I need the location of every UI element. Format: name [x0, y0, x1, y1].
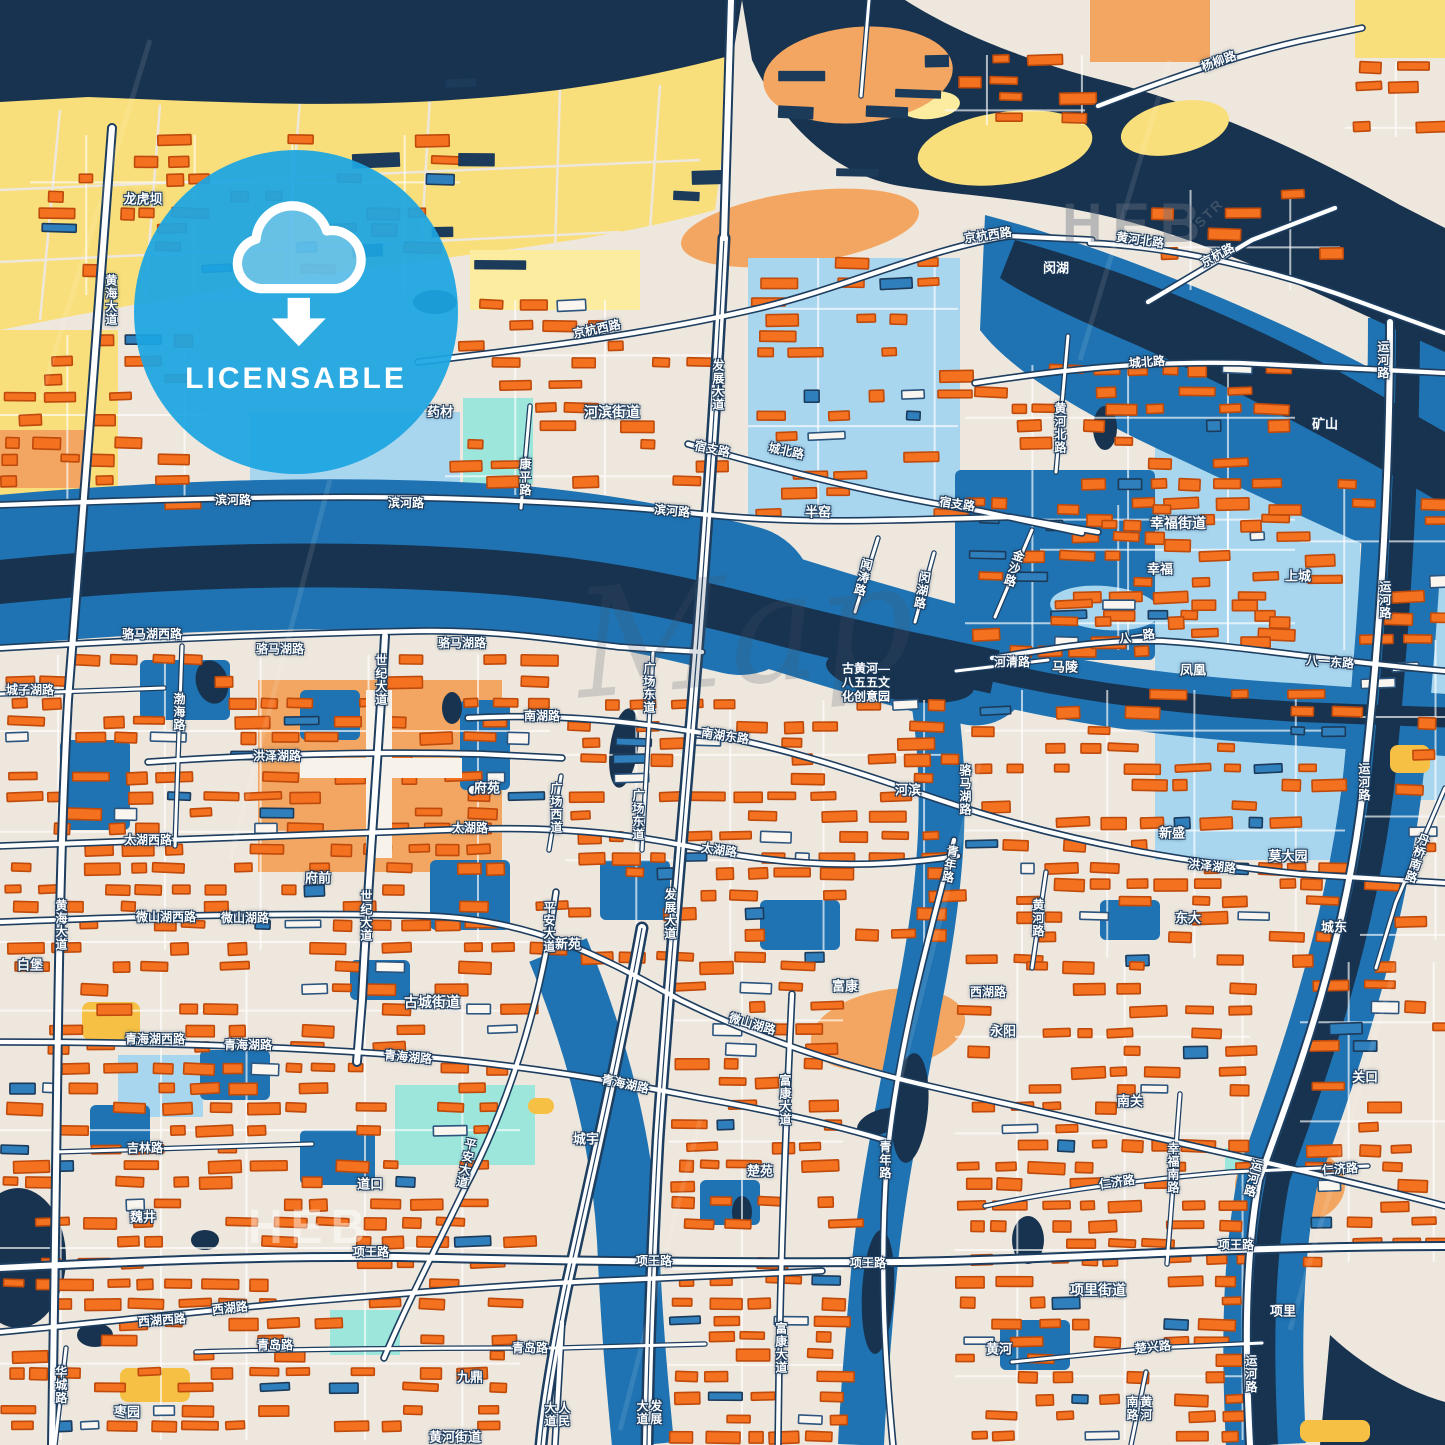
licensable-badge[interactable]: LICENSABLE	[134, 150, 458, 474]
licensable-badge-label: LICENSABLE	[185, 362, 407, 396]
map-poster: HEBSTRMapHEB 龙虎坝黄海大道杨柳路京杭西路京杭西路黄河北路京杭路闵湖…	[0, 0, 1445, 1445]
poi-dot	[468, 785, 478, 795]
cloud-shape	[237, 206, 361, 289]
download-arrow	[272, 298, 326, 346]
cloud-download-icon	[203, 184, 389, 356]
